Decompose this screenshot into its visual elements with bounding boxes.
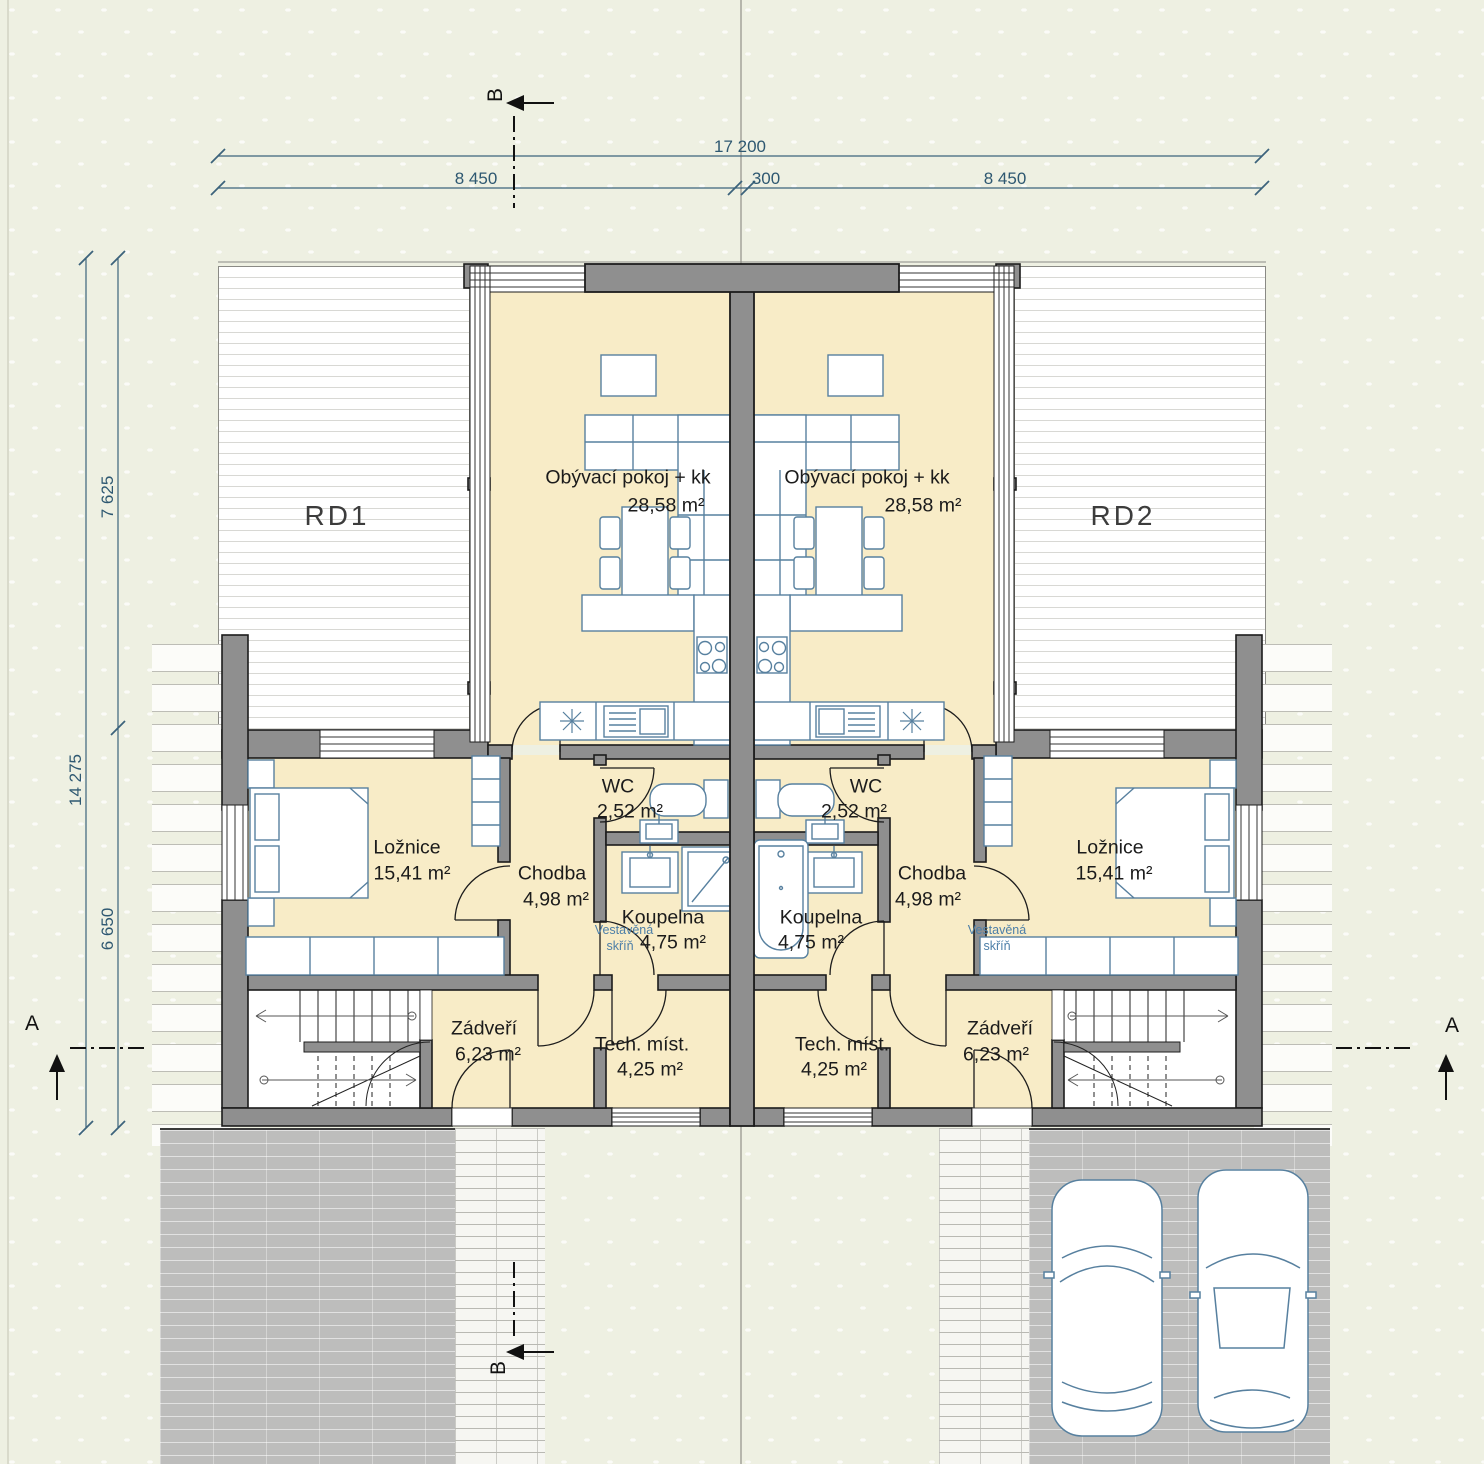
room-area-living-rd1: 28,58 m² [628, 495, 705, 518]
room-label-entry-rd1: Zádveří [451, 1018, 517, 1041]
room-label-bedroom-rd2: Ložnice [1076, 837, 1143, 860]
room-area-wc-rd1: 2,52 m² [597, 801, 663, 824]
room-label-hall-rd2: Chodba [898, 863, 966, 886]
room-area-entry-rd1: 6,23 m² [455, 1044, 521, 1067]
dim-total-depth: 14 275 [66, 754, 86, 806]
room-area-bedroom-rd2: 15,41 m² [1076, 863, 1153, 886]
room-area-hall-rd2: 4,98 m² [895, 889, 961, 912]
right-unit-drawing [754, 264, 1262, 1126]
dim-right-width: 8 450 [984, 169, 1027, 189]
room-label-wc-rd1: WC [602, 776, 635, 799]
room-area-bathroom-rd2: 4,75 m² [778, 932, 844, 955]
wardrobe-label-rd1-line1: Vestavěná [595, 923, 653, 937]
room-area-wc-rd2: 2,52 m² [821, 801, 887, 824]
dim-upper-depth: 7 625 [98, 476, 118, 519]
dim-gap: 300 [752, 169, 780, 189]
section-b-bottom: B [487, 1361, 511, 1375]
room-area-tech-rd2: 4,25 m² [801, 1059, 867, 1082]
floor-plan-canvas: 17 200 8 450 300 8 450 14 275 7 625 6 65… [0, 0, 1484, 1464]
room-label-living-rd1: Obývací pokoj + kk [545, 467, 710, 490]
room-area-hall-rd1: 4,98 m² [523, 889, 589, 912]
car-icon-right [1190, 1170, 1316, 1432]
section-a-left: A [25, 1012, 39, 1036]
dim-left-width: 8 450 [455, 169, 498, 189]
zone-label-rd2: RD2 [1090, 500, 1155, 532]
room-label-entry-rd2: Zádveří [967, 1018, 1033, 1041]
section-a-right: A [1445, 1014, 1459, 1038]
room-label-tech-rd1: Tech. míst. [595, 1034, 689, 1057]
room-area-entry-rd2: 6,23 m² [963, 1044, 1029, 1067]
room-label-bedroom-rd1: Ložnice [373, 837, 440, 860]
left-unit-drawing [222, 264, 730, 1126]
dim-lower-depth: 6 650 [98, 908, 118, 951]
section-b-top: B [484, 88, 508, 102]
room-label-bathroom-rd2: Koupelna [780, 907, 862, 930]
room-label-hall-rd1: Chodba [518, 863, 586, 886]
room-label-living-rd2: Obývací pokoj + kk [784, 467, 949, 490]
wardrobe-label-rd2-line1: Vestavěná [968, 923, 1026, 937]
room-area-living-rd2: 28,58 m² [885, 495, 962, 518]
shower-rd1 [682, 847, 737, 911]
zone-label-rd1: RD1 [304, 500, 369, 532]
car-icons [1044, 1170, 1316, 1436]
plan-drawing [0, 0, 1484, 1464]
room-label-wc-rd2: WC [850, 776, 883, 799]
wardrobe-label-rd2-line2: skříň [983, 939, 1010, 953]
room-area-bedroom-rd1: 15,41 m² [374, 863, 451, 886]
room-area-tech-rd1: 4,25 m² [617, 1059, 683, 1082]
car-icon-left [1044, 1180, 1170, 1436]
room-label-tech-rd2: Tech. míst. [795, 1034, 889, 1057]
wardrobe-label-rd1-line2: skříň [606, 939, 633, 953]
dim-total-width: 17 200 [714, 137, 766, 157]
